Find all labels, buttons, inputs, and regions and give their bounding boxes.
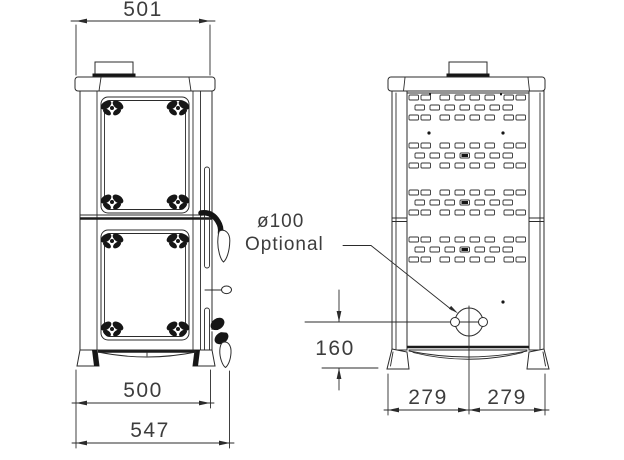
- dim-label-top-width: 501: [123, 0, 163, 21]
- top-plate-rear: [388, 77, 545, 91]
- stove-technical-drawing: 501 500 547: [0, 0, 624, 460]
- dim-label-overall-width: 547: [130, 419, 170, 442]
- stove-body-front: [80, 91, 212, 350]
- legs-rear: [387, 349, 549, 369]
- dim-label-hole-height: 160: [315, 337, 355, 360]
- annotation-diameter: ø100: [257, 211, 304, 232]
- annotation-optional: Optional: [245, 234, 324, 255]
- flue-collar-front: [93, 62, 136, 77]
- dimension-half-widths: 279 279: [384, 374, 549, 415]
- dimension-hole-height: 160: [315, 290, 378, 390]
- technical-drawing-page: 501 500 547: [0, 0, 624, 460]
- flue-collar-rear: [447, 62, 490, 77]
- lower-door-handle: [220, 342, 231, 367]
- rear-view: ø100 Optional 160 279 279: [245, 62, 549, 415]
- legs-front: [77, 350, 215, 366]
- dim-label-right-half: 279: [487, 386, 527, 409]
- front-view: 501 500 547: [71, 0, 234, 448]
- upper-door-handle: [218, 230, 230, 262]
- dimension-top-width: 501: [71, 0, 215, 75]
- dim-label-base-width: 500: [123, 379, 163, 402]
- dim-label-left-half: 279: [408, 386, 448, 409]
- stove-body-rear: [392, 91, 544, 350]
